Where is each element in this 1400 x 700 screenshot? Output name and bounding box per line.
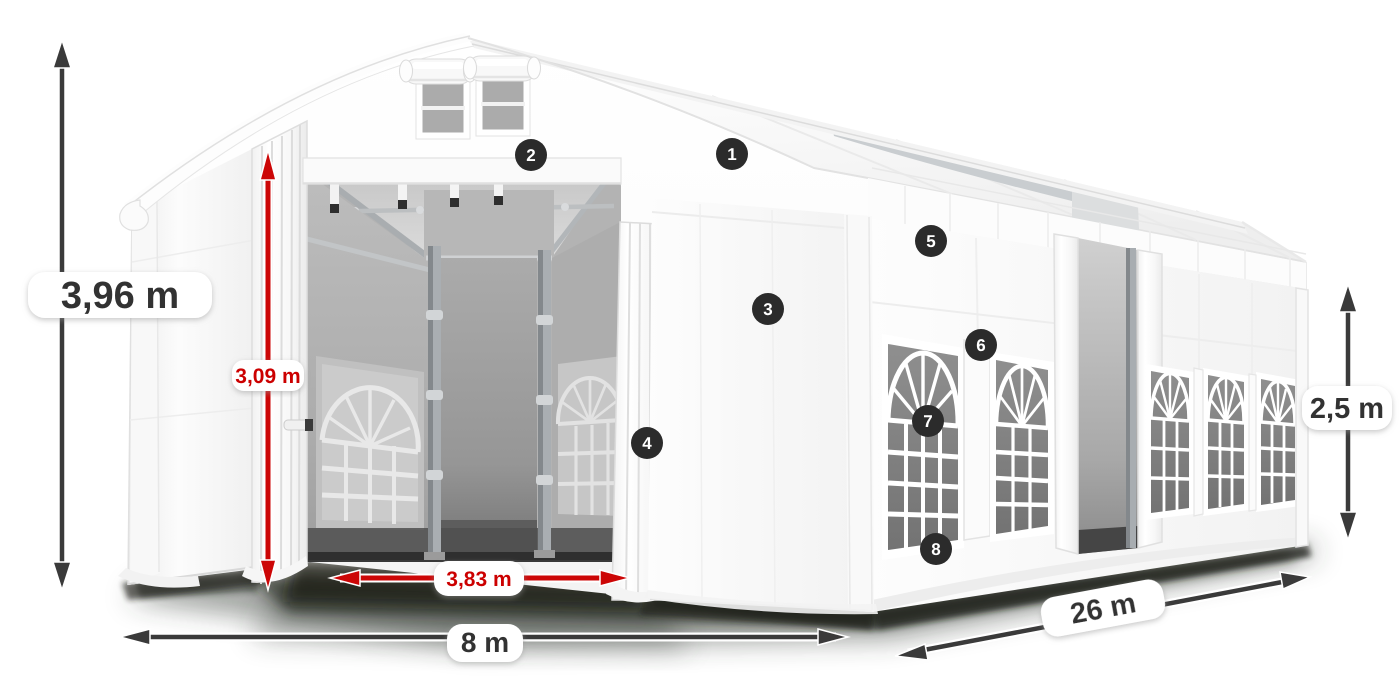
svg-text:3,09 m: 3,09 m	[235, 365, 300, 388]
svg-text:8 m: 8 m	[461, 627, 509, 658]
svg-text:6: 6	[976, 336, 985, 355]
svg-text:7: 7	[923, 412, 932, 431]
svg-text:3,96 m: 3,96 m	[61, 275, 179, 317]
svg-text:4: 4	[642, 434, 652, 453]
svg-text:5: 5	[926, 232, 935, 251]
svg-text:2: 2	[526, 146, 535, 165]
svg-text:3: 3	[763, 300, 772, 319]
svg-text:1: 1	[727, 145, 736, 164]
svg-text:2,5 m: 2,5 m	[1310, 393, 1384, 425]
svg-text:8: 8	[931, 540, 940, 559]
svg-text:3,83 m: 3,83 m	[446, 568, 511, 591]
